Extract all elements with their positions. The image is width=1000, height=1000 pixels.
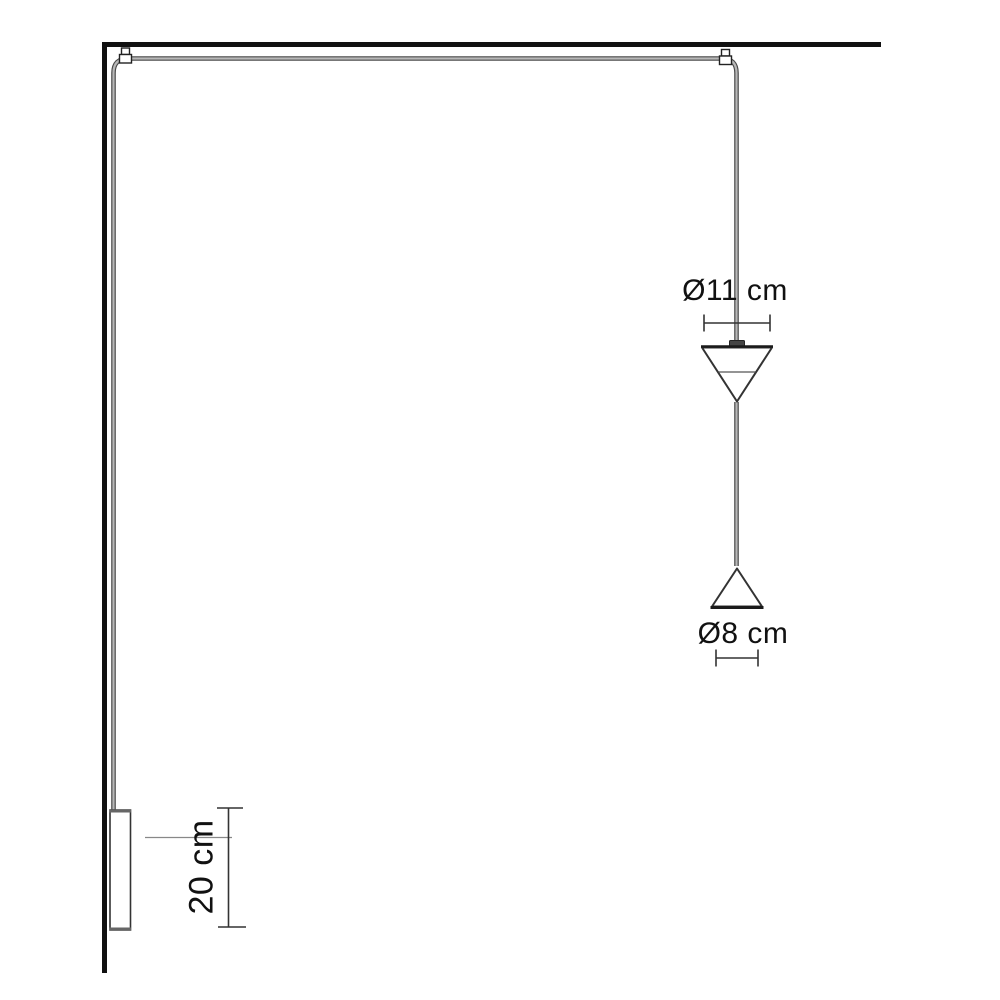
dimension-line-8cm	[716, 650, 758, 667]
upper-shade-diameter-label: Ø11 cm	[682, 274, 788, 308]
wall-driver-length-label: 20 cm	[183, 819, 222, 914]
ceiling-fastener-right-icon	[720, 50, 732, 65]
lower-shade-diameter-label: Ø8 cm	[698, 617, 789, 651]
upper-cone-body	[702, 348, 772, 402]
cable-core	[114, 59, 737, 811]
lamp-dimension-diagram: Ø11 cm Ø8 cm 20 cm	[0, 0, 1000, 1000]
cable-outline	[114, 59, 737, 811]
upper-cone-shade	[701, 341, 773, 402]
lower-cone-shade	[711, 569, 764, 608]
diagram-linework	[0, 0, 1000, 1000]
power-cable	[114, 59, 737, 811]
lower-cone-body	[712, 569, 762, 607]
ceiling-fastener-left-icon	[120, 48, 132, 63]
wall-driver-tube	[110, 810, 132, 930]
